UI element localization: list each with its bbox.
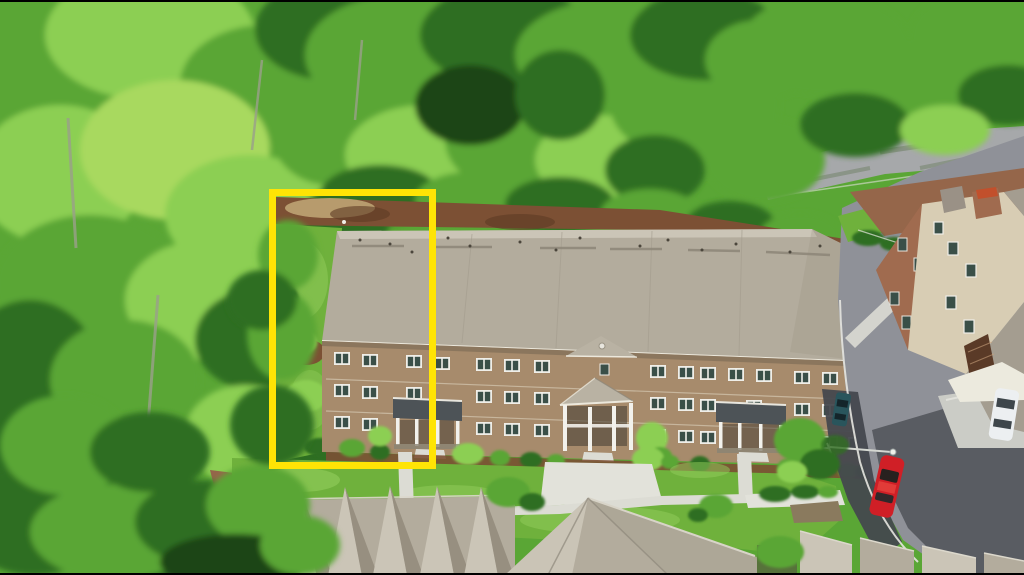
pediment-medallion: [599, 343, 605, 349]
letterbox-top: [0, 0, 1024, 2]
balcony-rail: [563, 424, 633, 428]
walk-to-right-porch: [737, 454, 753, 500]
aerial-photo: [0, 0, 1024, 575]
porch-right: [716, 402, 786, 462]
